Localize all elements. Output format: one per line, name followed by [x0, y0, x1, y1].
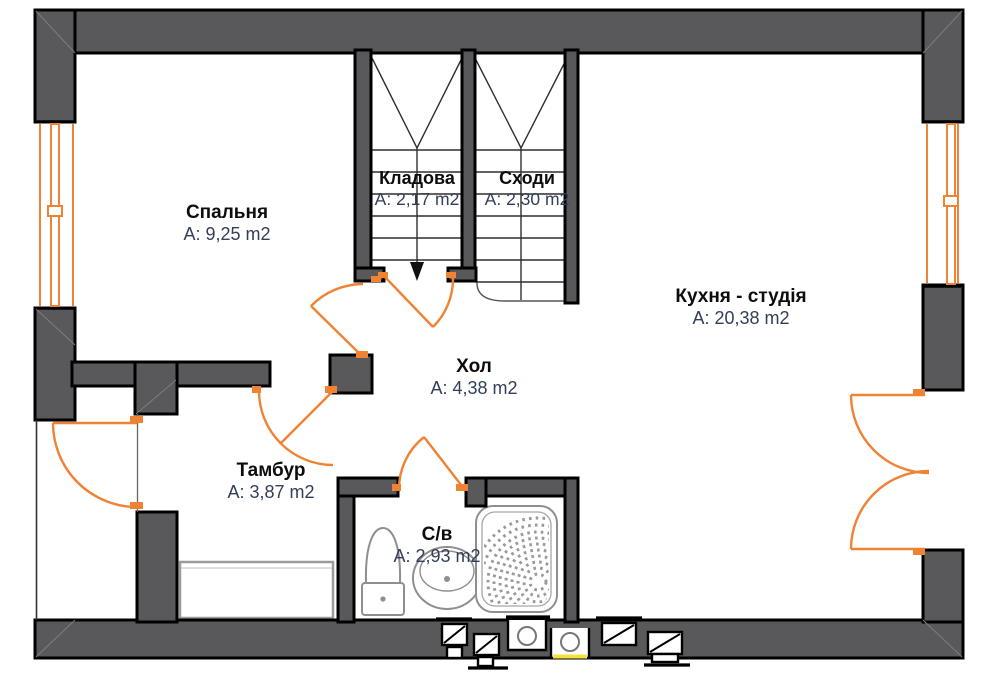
porch-boundary — [37, 414, 138, 620]
door-bathroom — [392, 437, 468, 491]
floor-plan: Спальня A: 9,25 m2 Кладова A: 2,17 m2 Сх… — [0, 0, 999, 696]
room-name-stairs: Сходи — [485, 168, 570, 189]
room-area-storage: A: 2,17 m2 — [375, 189, 460, 209]
room-name-storage: Кладова — [375, 168, 460, 189]
room-name-bathroom: С/в — [393, 524, 480, 546]
window-right — [923, 122, 961, 287]
label-vestibule: Тамбур A: 3,87 m2 — [227, 460, 314, 503]
wall-stairs-left — [355, 50, 371, 270]
room-name-kitchen: Кухня - студія — [675, 286, 806, 308]
wall-bathroom-right — [565, 478, 578, 622]
wall-bathtub-corner — [466, 478, 486, 506]
vent-shaft-3 — [596, 618, 642, 645]
door-bedroom — [311, 276, 381, 358]
window-left — [37, 122, 75, 309]
wall-vestibule-left — [137, 512, 177, 622]
plumbing-riser-1 — [506, 617, 550, 650]
wall-right-lower — [923, 550, 963, 622]
label-storage: Кладова A: 2,17 m2 — [375, 168, 460, 209]
label-hall: Хол A: 4,38 m2 — [430, 356, 517, 399]
wall-porch-corner — [135, 362, 177, 414]
plumbing-riser-gas — [551, 628, 589, 658]
floor-plan-drawing — [0, 0, 999, 696]
room-name-bedroom: Спальня — [183, 202, 270, 224]
wall-right-upper — [923, 10, 963, 122]
vent-shaft-4 — [644, 632, 690, 665]
room-area-kitchen: A: 20,38 m2 — [675, 308, 806, 329]
room-area-stairs: A: 2,30 m2 — [485, 189, 570, 209]
label-kitchen: Кухня - студія A: 20,38 m2 — [675, 286, 806, 329]
wall-top — [35, 10, 963, 53]
room-area-hall: A: 4,38 m2 — [430, 378, 517, 399]
wall-left-upper — [35, 10, 75, 122]
room-area-bedroom: A: 9,25 m2 — [183, 224, 270, 245]
room-area-bathroom: A: 2,93 m2 — [393, 546, 480, 567]
label-bedroom: Спальня A: 9,25 m2 — [183, 202, 270, 245]
door-vestibule — [252, 386, 337, 465]
wall-bathroom-top-left — [338, 478, 398, 496]
wall-left-mid — [35, 308, 75, 420]
wall-bathroom-left — [338, 478, 354, 622]
wardrobe — [180, 562, 333, 618]
label-stairs: Сходи A: 2,30 m2 — [485, 168, 570, 209]
wall-right-mid — [923, 285, 963, 390]
door-french-kitchen — [851, 389, 929, 555]
door-entrance — [53, 416, 143, 509]
stairs-direction-arrow — [410, 262, 424, 281]
room-name-vestibule: Тамбур — [227, 460, 314, 482]
room-area-vestibule: A: 3,87 m2 — [227, 482, 314, 503]
wall-stairs-mid — [462, 50, 475, 276]
room-name-hall: Хол — [430, 356, 517, 378]
label-bathroom: С/в A: 2,93 m2 — [393, 524, 480, 567]
